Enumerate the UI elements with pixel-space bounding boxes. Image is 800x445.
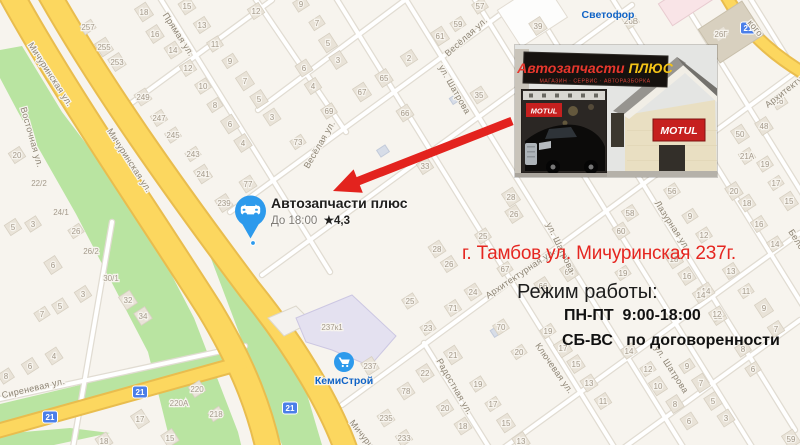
building-number: 10 bbox=[199, 82, 208, 91]
building-number: 25 bbox=[479, 232, 488, 241]
building-number: 3 bbox=[336, 56, 341, 65]
building-number: 239 bbox=[217, 199, 231, 208]
building-number: 16 bbox=[151, 30, 160, 39]
building-number: 66 bbox=[401, 109, 410, 118]
building-number: 26 bbox=[510, 210, 519, 219]
building-number: 6 bbox=[28, 362, 33, 371]
building-number: 23 bbox=[424, 324, 433, 333]
building-number: 218 bbox=[209, 410, 223, 419]
building-number: 3 bbox=[724, 414, 729, 423]
building-number: 4 bbox=[311, 82, 316, 91]
building-number: 4 bbox=[241, 139, 246, 148]
building-number: 257 bbox=[81, 23, 95, 32]
building-number: 13 bbox=[727, 267, 736, 276]
building-number: 18 bbox=[743, 199, 752, 208]
building-number: 15 bbox=[502, 419, 511, 428]
street-label: ул. Шатрова bbox=[437, 63, 473, 115]
poi-hours: До 18:00 bbox=[271, 215, 317, 227]
building-number: 26 bbox=[72, 227, 81, 236]
building-number: 70 bbox=[497, 323, 506, 332]
building-number: 249 bbox=[136, 93, 150, 102]
svg-text:21: 21 bbox=[136, 388, 145, 397]
schedule-weekend: СБ-ВС по договоренности bbox=[562, 332, 780, 350]
storefront-photo: MOTUL АвтозапчастиПЛЮС МАГАЗИН · СЕРВИС … bbox=[515, 45, 717, 177]
building-number: 16 bbox=[755, 220, 764, 229]
building-number: 8 bbox=[673, 400, 678, 409]
building-number: 30/1 bbox=[103, 274, 119, 283]
building-number: 56 bbox=[668, 187, 677, 196]
building-number: 28 bbox=[433, 245, 442, 254]
building-number: 9 bbox=[685, 362, 690, 371]
building-number: 233 bbox=[397, 434, 411, 443]
building-number: 22/2 bbox=[31, 179, 47, 188]
building-number: 7 bbox=[243, 77, 248, 86]
building-number: 17 bbox=[136, 415, 145, 424]
building-number: 245 bbox=[166, 131, 180, 140]
building-number: 65 bbox=[380, 74, 389, 83]
building-number: 5 bbox=[711, 397, 716, 406]
photo-billboard: MOTUL bbox=[521, 89, 607, 174]
motul-sign-text: MOTUL bbox=[660, 125, 697, 137]
building-number: 15 bbox=[572, 360, 581, 369]
route-badge: 21 bbox=[283, 402, 298, 414]
building-number: 220А bbox=[170, 399, 189, 408]
building-number: 26/2 bbox=[83, 247, 99, 256]
building-number: 22 bbox=[421, 369, 430, 378]
poi-label[interactable]: Автозапчасти плюс До 18:00 ★4,3 bbox=[271, 195, 408, 227]
building-number: 67 bbox=[501, 265, 510, 274]
pin-anchor-dot bbox=[251, 241, 256, 246]
building-number: 15 bbox=[166, 434, 175, 443]
building-number: 12 bbox=[644, 365, 653, 374]
poi-subtitle: До 18:00 ★4,3 bbox=[271, 213, 408, 227]
building-number: 6 bbox=[687, 417, 692, 426]
store-sign-subtext: МАГАЗИН · СЕРВИС · АВТОРАЗБОРКА bbox=[539, 79, 650, 85]
building-number: 235 bbox=[379, 414, 393, 423]
building-number: 7 bbox=[40, 310, 45, 319]
building-number: 21 bbox=[449, 351, 458, 360]
map-screenshot: 21212121 2572552532492472452432412397720… bbox=[0, 0, 800, 445]
building-number: 3 bbox=[81, 290, 86, 299]
building-number: 33 bbox=[421, 162, 430, 171]
poi-kemistroy-label: КемиСтрой bbox=[315, 375, 373, 387]
building-number: 4 bbox=[52, 352, 57, 361]
building-number: 19 bbox=[619, 269, 628, 278]
building-number: 237 bbox=[363, 362, 377, 371]
building-number: 11 bbox=[742, 287, 751, 296]
destination-arrow bbox=[333, 117, 514, 193]
building-number: 6 bbox=[51, 261, 56, 270]
building-number: 67 bbox=[358, 88, 367, 97]
building-number: 19 bbox=[544, 327, 553, 336]
building-number: 34 bbox=[139, 312, 148, 321]
schedule-title: Режим работы: bbox=[517, 281, 658, 304]
building-number: 2 bbox=[407, 54, 412, 63]
building-number: 8 bbox=[213, 101, 218, 110]
building-number: 24 bbox=[469, 288, 478, 297]
building-number: 12 bbox=[713, 310, 722, 319]
schedule-weekdays: ПН-ПТ 9:00-18:00 bbox=[564, 307, 701, 325]
building-number: 20 bbox=[13, 151, 22, 160]
poi-title[interactable]: Автозапчасти плюс bbox=[271, 195, 408, 211]
building-number: 6 bbox=[228, 120, 233, 129]
star-icon: ★ bbox=[324, 215, 334, 227]
building-number: 20 bbox=[515, 348, 524, 357]
route-badge: 21 bbox=[133, 386, 148, 398]
building-number: 18 bbox=[459, 422, 468, 431]
building-number: 243 bbox=[186, 150, 200, 159]
cart-wheel bbox=[346, 365, 348, 367]
building-number: 14 bbox=[771, 240, 780, 249]
building-number: 14 bbox=[697, 291, 706, 300]
building-number: 220 bbox=[190, 385, 204, 394]
building-number: 15 bbox=[785, 197, 794, 206]
building-number: 18 bbox=[140, 8, 149, 17]
building-number: 5 bbox=[326, 39, 331, 48]
building-number: 9 bbox=[762, 304, 767, 313]
building-number: 8 bbox=[4, 372, 9, 381]
building-number: 73 bbox=[294, 138, 303, 147]
street-label: Весёлая ул. bbox=[443, 15, 489, 58]
building-number: 26 bbox=[445, 260, 454, 269]
building-number: 9 bbox=[688, 212, 693, 221]
building-number: 24/1 bbox=[53, 208, 69, 217]
building-number: 253 bbox=[110, 58, 124, 67]
building-number: 58 bbox=[626, 209, 635, 218]
building-number: 71 bbox=[449, 304, 458, 313]
building-number: 61 bbox=[436, 32, 445, 41]
building-number: 19 bbox=[761, 160, 770, 169]
building-number: 78 bbox=[402, 387, 411, 396]
building-number: 11 bbox=[211, 40, 220, 49]
building-number: 12 bbox=[184, 64, 193, 73]
building-number: 13 bbox=[198, 21, 207, 30]
building-number: 5 bbox=[11, 223, 16, 232]
building-number: 10 bbox=[654, 382, 663, 391]
building-number: 20 bbox=[730, 187, 739, 196]
building-number: 69 bbox=[325, 107, 334, 116]
building-number: 19 bbox=[474, 380, 483, 389]
building-number: 12 bbox=[700, 231, 709, 240]
building-number: 57 bbox=[476, 2, 485, 11]
building-number: 13 bbox=[585, 379, 594, 388]
building-number: 59 bbox=[454, 20, 463, 29]
cart-wheel bbox=[342, 365, 344, 367]
street-label: Весёлая ул. bbox=[302, 119, 337, 170]
building-number: 25 bbox=[406, 297, 415, 306]
building-number: 17 bbox=[489, 400, 498, 409]
building-number: 5 bbox=[257, 95, 262, 104]
building-number: 241 bbox=[196, 170, 210, 179]
building-number: 39 bbox=[534, 22, 543, 31]
building-number: 13 bbox=[517, 437, 526, 445]
building-number: 237к1 bbox=[321, 323, 343, 332]
building-number: 9 bbox=[228, 57, 233, 66]
building-number: 12 bbox=[252, 7, 261, 16]
motul-logo-text: MOTUL bbox=[531, 107, 558, 116]
address-text: г. Тамбов ул. Мичуринская 237г. bbox=[462, 243, 736, 265]
svg-text:21: 21 bbox=[46, 413, 55, 422]
location-pin[interactable] bbox=[235, 196, 266, 246]
building-number: 32 bbox=[124, 296, 133, 305]
building-number: 7 bbox=[315, 19, 320, 28]
building-number: 60 bbox=[617, 227, 626, 236]
building-number: 28 bbox=[507, 193, 516, 202]
building-number: 14 bbox=[169, 46, 178, 55]
building-number: 15 bbox=[183, 2, 192, 11]
building-number: 26Г bbox=[714, 30, 728, 39]
store-sign-text: АвтозапчастиПЛЮС bbox=[516, 60, 674, 76]
poi-rating: 4,3 bbox=[334, 215, 350, 227]
poi-svetofor[interactable]: Светофор bbox=[582, 9, 635, 21]
building-number: 5 bbox=[58, 302, 63, 311]
building-number: 9 bbox=[299, 0, 304, 9]
building-number: 247 bbox=[152, 114, 166, 123]
building-number: 11 bbox=[599, 397, 608, 406]
building-number: 59 bbox=[787, 435, 796, 444]
building-number: 35 bbox=[475, 91, 484, 100]
building-number: 50 bbox=[736, 130, 745, 139]
building-number: 20 bbox=[441, 404, 450, 413]
building-number: 48 bbox=[760, 122, 769, 131]
building-number: 7 bbox=[699, 379, 704, 388]
building-number: 3 bbox=[31, 220, 36, 229]
building-number: 16 bbox=[683, 272, 692, 281]
building-number: 6 bbox=[751, 365, 756, 374]
building-number: 6 bbox=[302, 64, 307, 73]
building-number: 3 bbox=[270, 113, 275, 122]
building-number: 17 bbox=[772, 179, 781, 188]
svg-text:21: 21 bbox=[286, 404, 295, 413]
route-badge: 21 bbox=[43, 411, 58, 423]
building-number: 255 bbox=[97, 43, 111, 52]
building-number: 18 bbox=[100, 437, 109, 445]
building-number: 77 bbox=[244, 180, 253, 189]
building-number: 21А bbox=[740, 152, 755, 161]
